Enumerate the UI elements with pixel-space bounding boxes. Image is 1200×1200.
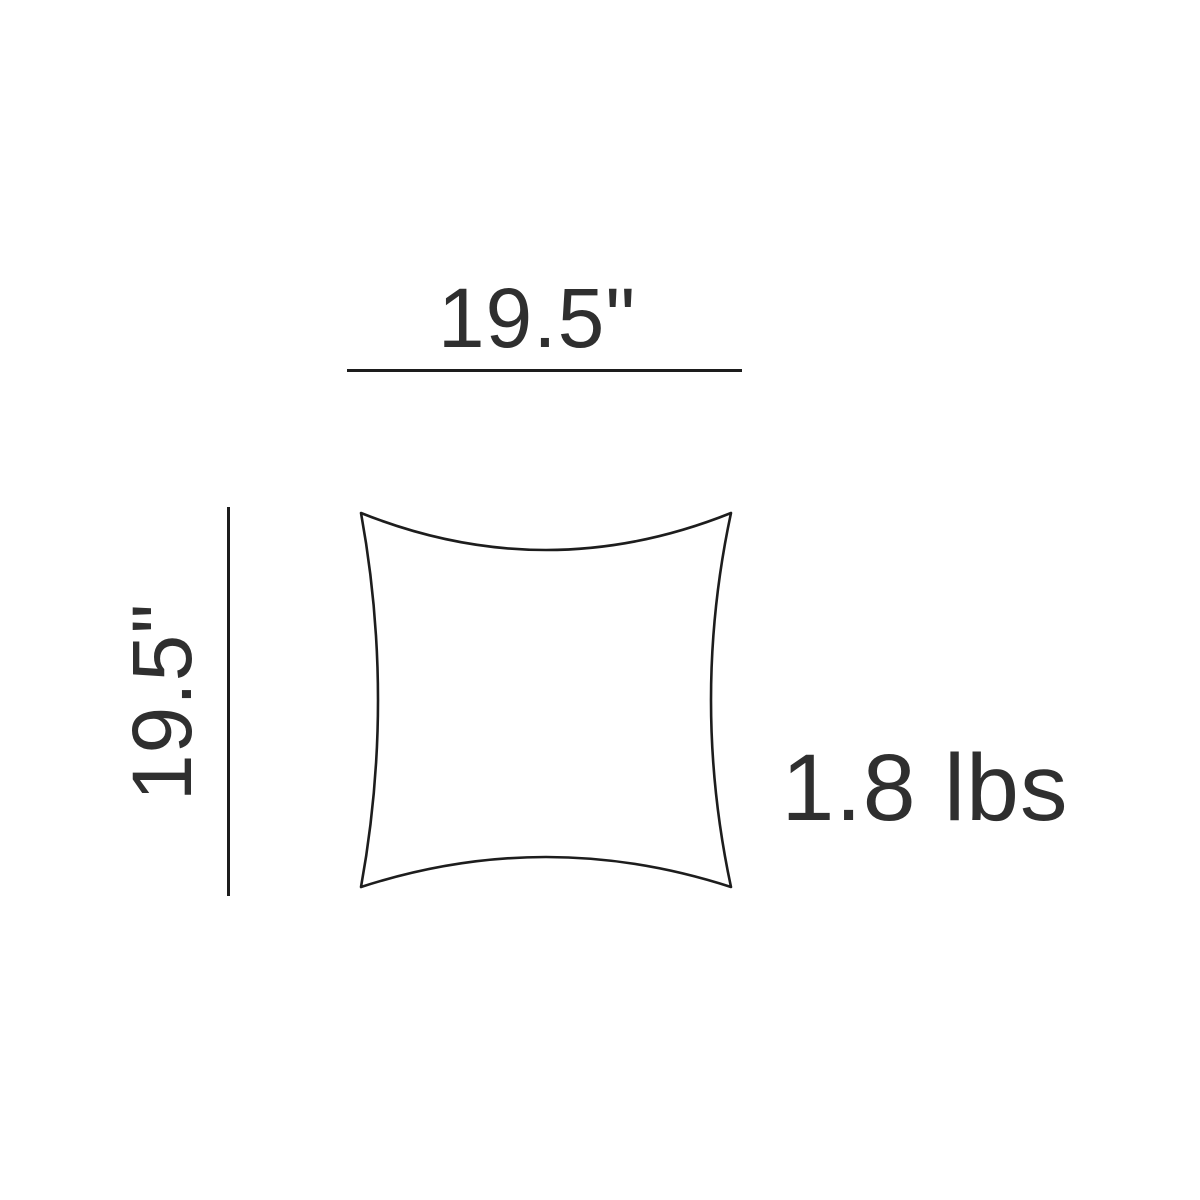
height-dimension-line	[227, 507, 230, 896]
pillow-outline-icon	[352, 504, 740, 896]
dimension-diagram: 19.5" 19.5" 1.8 lbs	[0, 0, 1200, 1200]
height-dimension-label: 19.5"	[120, 603, 204, 801]
width-dimension-label: 19.5"	[287, 276, 787, 360]
height-dimension-label-wrap: 19.5"	[112, 552, 212, 852]
pillow-outline-path	[361, 513, 731, 887]
weight-label: 1.8 lbs	[760, 738, 1090, 838]
width-dimension-line	[347, 369, 742, 372]
